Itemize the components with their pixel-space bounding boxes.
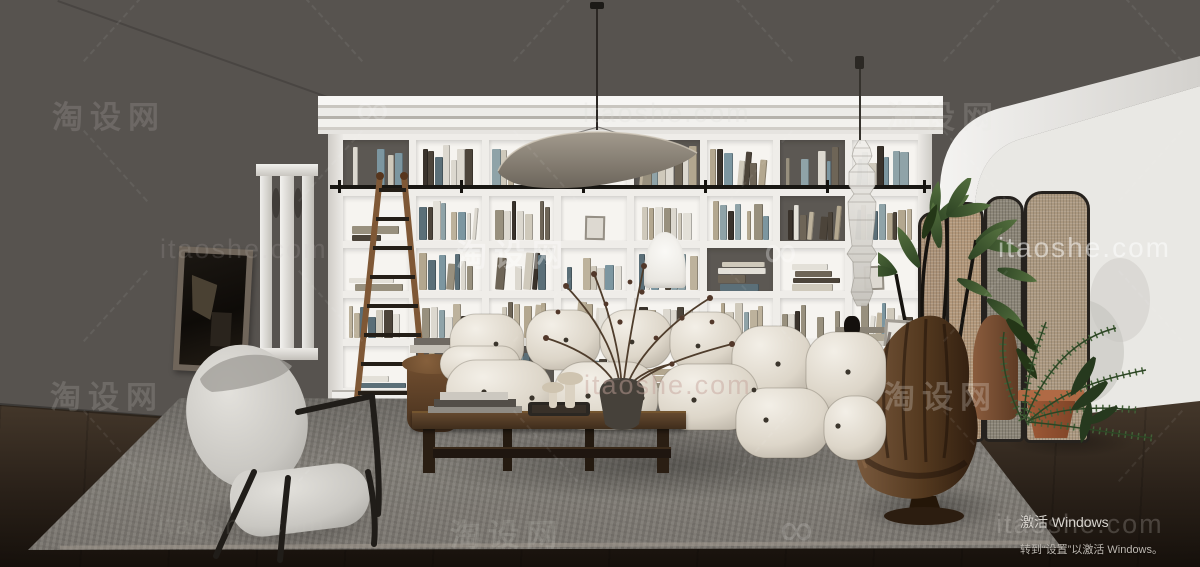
book-spine — [786, 158, 790, 188]
book-spine — [678, 213, 683, 240]
book-spine — [458, 212, 466, 240]
pagoda-pendant-lamp — [842, 140, 882, 308]
book-spine — [788, 210, 793, 240]
book-spine — [800, 215, 807, 240]
bookshelf-cell — [707, 196, 773, 241]
book-spine — [441, 203, 445, 240]
book-spine — [801, 159, 809, 188]
book-spine — [794, 205, 799, 240]
book-spine — [439, 255, 446, 290]
book-spine — [735, 204, 741, 240]
book-spine — [649, 208, 655, 240]
pendant-lamp-cord — [596, 4, 598, 130]
book-spine — [467, 266, 473, 290]
interior-render-scene: 淘设网∞itaoshe.com淘设网itaoshe.com淘设网∞itaoshe… — [0, 0, 1200, 567]
book-spine — [461, 261, 466, 290]
bookshelf-cell — [561, 196, 627, 241]
book-stack — [795, 271, 832, 277]
pendant-lamp-canopy — [590, 2, 604, 9]
book-spine — [512, 201, 516, 240]
decor-frame — [585, 216, 606, 240]
pagoda-lamp-cord — [859, 58, 861, 144]
book-spine — [754, 204, 762, 240]
bookshelf-cell — [489, 196, 555, 241]
book-spine — [540, 201, 545, 240]
rail-bracket — [460, 180, 463, 193]
book-spine — [525, 214, 533, 240]
book-spine — [710, 149, 716, 188]
branch-vase — [600, 378, 645, 430]
book-stack — [792, 284, 833, 291]
book-spine — [517, 211, 524, 240]
book-spine — [728, 211, 734, 240]
book-spine — [642, 207, 648, 240]
book-spine — [472, 208, 479, 240]
activation-line2: 转到“设置”以激活 Windows。 — [1020, 541, 1200, 557]
book-spine — [713, 201, 719, 240]
book-spine — [724, 153, 733, 188]
book-spine — [545, 207, 550, 240]
dried-branches — [522, 252, 777, 437]
activation-line1: 激活 Windows — [1020, 512, 1200, 532]
book-stack — [793, 278, 840, 283]
book-spine — [455, 254, 461, 290]
book-spine — [747, 211, 751, 240]
pendant-lamp — [488, 124, 706, 200]
book-spine — [495, 210, 504, 240]
pagoda-lamp-fitting — [855, 56, 864, 69]
boucle-armchair — [172, 332, 397, 564]
book-spine — [834, 206, 842, 240]
activation-watermark: 激活 Windows 转到“设置”以激活 Windows。 — [1020, 512, 1200, 557]
book-spine — [443, 145, 450, 188]
bookshelf-cell — [780, 196, 846, 241]
book-stack — [428, 390, 528, 414]
book-spine — [495, 258, 507, 290]
rail-bracket — [826, 180, 829, 193]
bookshelf-cell — [780, 140, 846, 189]
book-spine — [807, 212, 814, 240]
book-spine — [758, 160, 767, 188]
fern-plant — [986, 298, 1186, 443]
book-spine — [683, 213, 692, 240]
bookshelf-cell — [780, 248, 846, 291]
book-spine — [451, 212, 457, 240]
book-spine — [465, 149, 473, 188]
bookshelf-cell — [707, 140, 773, 189]
book-spine — [504, 211, 511, 240]
book-spine — [467, 213, 471, 240]
book-spine — [828, 212, 834, 240]
book-spine — [451, 160, 457, 188]
book-spine — [763, 216, 768, 240]
book-spine — [720, 205, 727, 240]
book-spine — [832, 147, 839, 189]
book-stack — [792, 264, 828, 270]
book-spine — [717, 149, 724, 188]
